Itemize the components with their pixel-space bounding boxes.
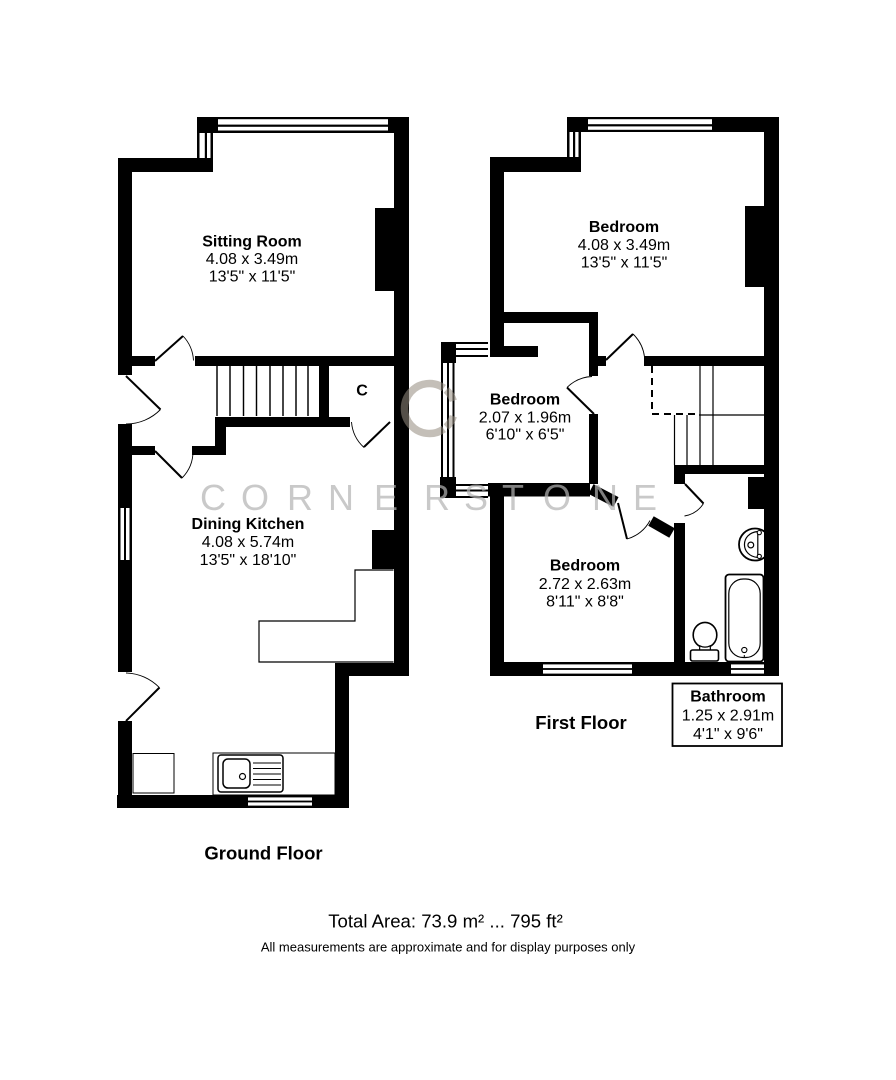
svg-text:Ground Floor: Ground Floor	[204, 843, 322, 864]
svg-text:4.08 x 3.49m: 4.08 x 3.49m	[578, 237, 671, 254]
svg-text:E: E	[633, 477, 657, 518]
svg-text:N: N	[592, 477, 618, 518]
svg-text:O: O	[543, 477, 571, 518]
svg-text:Total Area: 73.9 m² ... 795 ft: Total Area: 73.9 m² ... 795 ft²	[328, 911, 563, 932]
svg-text:Dining Kitchen: Dining Kitchen	[192, 516, 305, 533]
svg-text:13'5" x 11'5": 13'5" x 11'5"	[581, 254, 668, 271]
svg-text:13'5" x 18'10": 13'5" x 18'10"	[200, 552, 297, 569]
svg-text:Sitting Room: Sitting Room	[202, 234, 302, 251]
svg-text:N: N	[328, 477, 354, 518]
svg-text:O: O	[241, 477, 269, 518]
svg-text:R: R	[287, 477, 313, 518]
svg-text:Bedroom: Bedroom	[589, 219, 659, 236]
svg-text:13'5" x 11'5": 13'5" x 11'5"	[209, 269, 296, 286]
svg-text:2.07 x 1.96m: 2.07 x 1.96m	[479, 410, 572, 427]
svg-text:C: C	[200, 477, 226, 518]
svg-text:Bedroom: Bedroom	[550, 558, 620, 575]
svg-text:First Floor: First Floor	[535, 712, 626, 733]
svg-text:C: C	[356, 383, 368, 400]
svg-text:T: T	[502, 477, 524, 518]
svg-text:4.08 x 5.74m: 4.08 x 5.74m	[202, 534, 295, 551]
svg-text:8'11" x 8'8": 8'11" x 8'8"	[546, 594, 624, 611]
svg-text:E: E	[374, 477, 398, 518]
svg-text:S: S	[464, 477, 488, 518]
svg-text:6'10" x 6'5": 6'10" x 6'5"	[486, 427, 565, 444]
svg-text:4'1" x 9'6": 4'1" x 9'6"	[693, 726, 763, 743]
svg-text:1.25 x 2.91m: 1.25 x 2.91m	[682, 707, 775, 724]
svg-text:Bathroom: Bathroom	[690, 689, 766, 706]
svg-text:R: R	[424, 477, 450, 518]
svg-text:Bedroom: Bedroom	[490, 392, 560, 409]
svg-text:4.08 x 3.49m: 4.08 x 3.49m	[206, 251, 299, 268]
svg-text:All measurements are approxima: All measurements are approximate and for…	[261, 940, 636, 955]
svg-text:2.72 x 2.63m: 2.72 x 2.63m	[539, 576, 632, 593]
